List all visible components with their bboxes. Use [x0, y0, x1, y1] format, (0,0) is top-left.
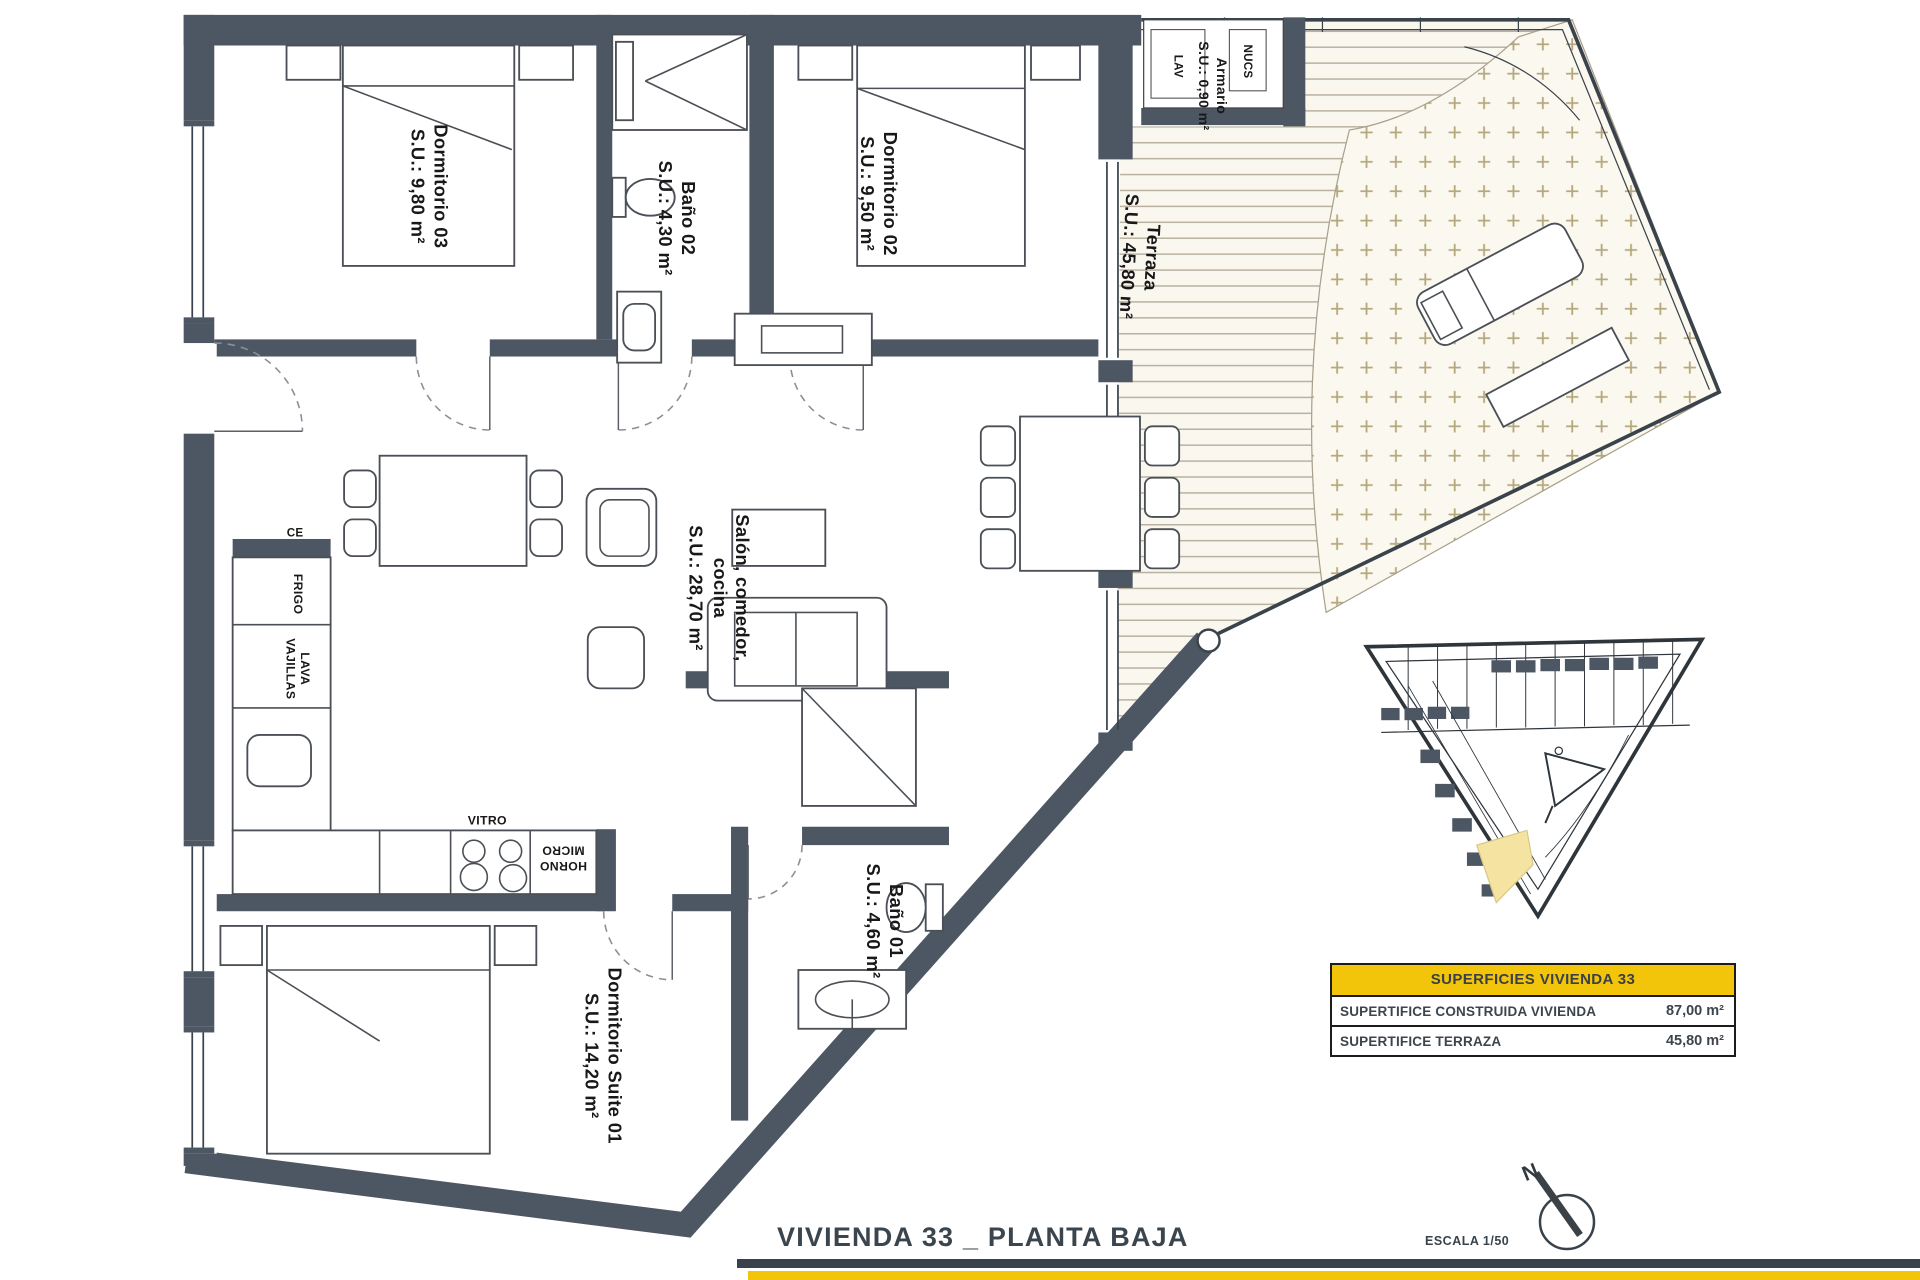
label-ce: CE [287, 527, 304, 540]
room-name: Dormitorio 02 [880, 132, 901, 256]
surface-row-label: SUPERTIFICE TERRAZA [1332, 1034, 1666, 1049]
room-name: Armario [1214, 58, 1230, 115]
room-area: S.U.: 0,90 m² [1196, 41, 1212, 130]
label-horno-micro: HORNO MICRO [540, 843, 587, 873]
svg-text:NUCS: NUCS [1241, 44, 1254, 78]
room-name-line2: cocina [710, 558, 731, 619]
room-label-bano-01: Baño 01 S.U.: 4,60 m² [863, 864, 907, 979]
svg-text:LAVA: LAVA [298, 652, 312, 685]
surface-table: SUPERFICIES VIVIENDA 33 SUPERTIFICE CONS… [1330, 963, 1736, 1057]
room-name: Dormitorio 03 [431, 124, 452, 248]
room-name: Dormitorio Suite 01 [605, 968, 626, 1144]
dining-table [344, 456, 562, 566]
surface-row-label: SUPERTIFICE CONSTRUIDA VIVIENDA [1332, 1004, 1666, 1019]
room-name: Baño 01 [886, 884, 907, 958]
label-lav: LAV [1171, 55, 1184, 78]
floor-plan-drawing: Dormitorio 03 S.U.: 9,80 m² Baño 02 S.U.… [0, 0, 1920, 1280]
sink-bano02 [617, 292, 661, 363]
terrace-dining-table [981, 417, 1179, 571]
bed-dormitorio-02 [798, 46, 1080, 266]
surface-row-value: 45,80 m² [1666, 1033, 1734, 1049]
floorplan-sheet: Dormitorio 03 S.U.: 9,80 m² Baño 02 S.U.… [0, 0, 1920, 1280]
tv-sideboard [735, 314, 872, 365]
shower-bano02 [612, 34, 747, 130]
room-name: Terraza [1140, 224, 1164, 292]
north-needle [1536, 1173, 1580, 1235]
room-area: S.U.: 9,80 m² [407, 129, 428, 244]
kitchen-counters [233, 539, 597, 894]
bed-suite [220, 926, 536, 1154]
title-bar-dark [737, 1259, 1920, 1268]
room-label-bano-02: Baño 02 S.U.: 4,30 m² [655, 161, 699, 276]
sheet-title: VIVIENDA 33 _ PLANTA BAJA [777, 1222, 1189, 1253]
room-name: Baño 02 [678, 181, 699, 255]
room-area: S.U.: 14,20 m² [581, 993, 602, 1119]
north-arrow: N [1500, 1145, 1610, 1255]
svg-text:FRIGO: FRIGO [291, 574, 305, 615]
room-area: S.U.: 4,60 m² [863, 864, 884, 979]
scale-label: ESCALA 1/50 [1425, 1234, 1509, 1248]
site-key-plan [1367, 639, 1703, 916]
label-nucs: NUCS [1241, 44, 1254, 78]
sink-bano01 [798, 970, 906, 1029]
title-bar-yellow [748, 1271, 1920, 1280]
room-area: S.U.: 9,50 m² [857, 136, 878, 251]
svg-text:VAJILLAS: VAJILLAS [284, 638, 298, 699]
room-area: S.U.: 28,70 m² [685, 525, 706, 651]
svg-text:HORNO: HORNO [540, 859, 587, 873]
svg-text:LAV: LAV [1171, 55, 1184, 78]
armchair [587, 489, 657, 689]
surface-row-value: 87,00 m² [1666, 1003, 1734, 1019]
svg-text:MICRO: MICRO [542, 843, 585, 857]
room-name-line1: Salón, comedor, [732, 514, 753, 661]
surface-table-row: SUPERTIFICE TERRAZA 45,80 m² [1332, 1027, 1734, 1055]
surface-table-row: SUPERTIFICE CONSTRUIDA VIVIENDA 87,00 m² [1332, 997, 1734, 1027]
wardrobe-suite [802, 688, 916, 806]
room-area: S.U.: 4,30 m² [655, 161, 676, 276]
label-frigo: FRIGO [291, 574, 305, 615]
drain-symbol [1198, 630, 1220, 652]
label-vitro: VITRO [468, 813, 507, 827]
room-label-suite: Dormitorio Suite 01 S.U.: 14,20 m² [581, 968, 625, 1144]
surface-table-header: SUPERFICIES VIVIENDA 33 [1332, 965, 1734, 997]
